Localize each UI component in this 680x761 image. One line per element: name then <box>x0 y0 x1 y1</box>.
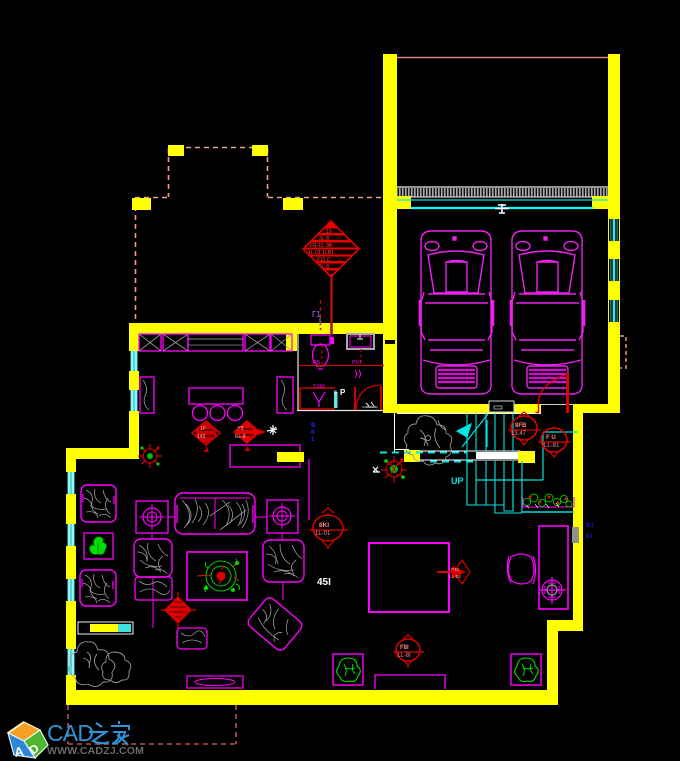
svg-text:Γ1: Γ1 <box>312 310 321 319</box>
svg-text:LL-B2: LL-B2 <box>449 574 462 579</box>
svg-text:45I: 45I <box>317 577 331 588</box>
svg-text:81: 81 <box>586 534 593 540</box>
svg-text:8KI: 8KI <box>319 522 329 529</box>
svg-text:F11 C: F11 C <box>317 257 331 263</box>
svg-text:CAD: CAD <box>47 720 93 746</box>
svg-text:F8I: F8I <box>400 645 409 651</box>
svg-text:B1: B1 <box>586 523 594 529</box>
svg-text:8: 8 <box>334 390 337 396</box>
svg-text:8FB: 8FB <box>515 423 527 429</box>
svg-text:1F: 1F <box>200 426 207 432</box>
svg-text:EL-8: EL-8 <box>235 434 246 440</box>
svg-text:PS: PS <box>313 360 321 366</box>
svg-text:10: 10 <box>326 229 332 235</box>
svg-text:13.47: 13.47 <box>511 431 527 437</box>
svg-text:1L-01: 1L-01 <box>315 531 331 537</box>
svg-text:TXM: TXM <box>313 384 325 390</box>
svg-text:F U: F U <box>546 435 556 441</box>
svg-text:FR-11 9B: FR-11 9B <box>310 243 333 249</box>
svg-text:Y8: Y8 <box>237 426 244 432</box>
svg-text:1L-01 1LB1: 1L-01 1LB1 <box>308 250 334 256</box>
svg-text:2L-8: 2L-8 <box>319 236 329 242</box>
svg-text:UP: UP <box>451 476 464 486</box>
svg-text:1L-8I: 1L-8I <box>397 653 411 659</box>
svg-text:LL-81: LL-81 <box>544 443 560 449</box>
svg-text:P: P <box>340 388 346 397</box>
svg-text:WWW.CADZJ.COM: WWW.CADZJ.COM <box>47 745 144 757</box>
svg-text:P32: P32 <box>451 567 460 572</box>
svg-text:145: 145 <box>197 434 206 440</box>
svg-text:PVI: PVI <box>352 360 361 366</box>
svg-text:B: B <box>311 423 316 429</box>
